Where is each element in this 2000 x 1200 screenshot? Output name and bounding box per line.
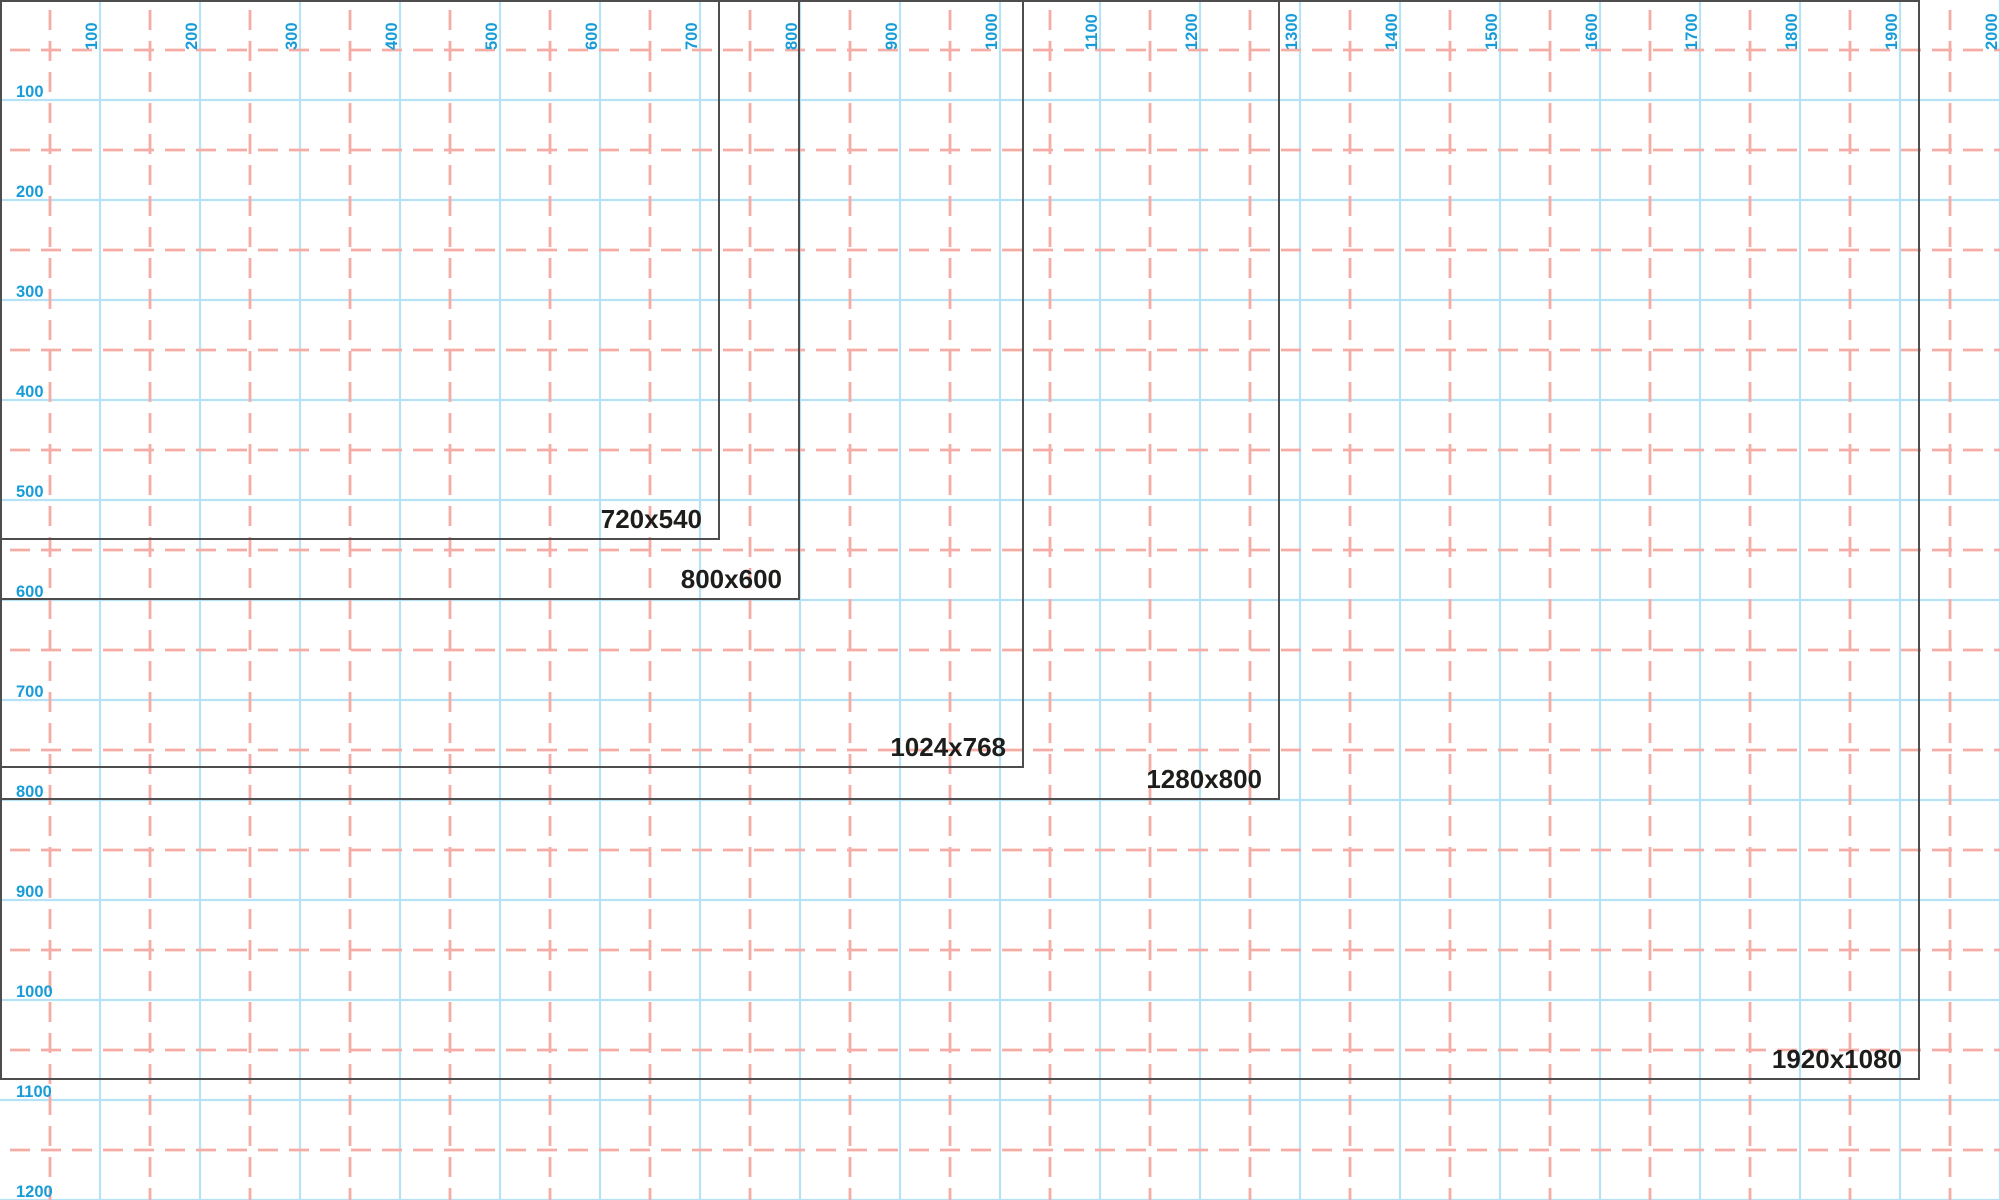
top-tick-label-300: 300	[283, 22, 301, 50]
top-tick-label-400: 400	[383, 22, 401, 50]
top-tick-label-1400: 1400	[1383, 13, 1401, 50]
resolution-grid-svg: 720x540800x6001024x7681280x8001920x10801…	[0, 0, 2000, 1200]
left-tick-label-200: 200	[16, 183, 44, 201]
top-tick-label-1700: 1700	[1683, 13, 1701, 50]
top-tick-label-1100: 1100	[1083, 14, 1101, 50]
top-tick-label-1000: 1000	[983, 13, 1001, 50]
left-tick-label-700: 700	[16, 683, 44, 701]
top-tick-label-500: 500	[483, 22, 501, 50]
left-tick-label-900: 900	[16, 883, 44, 901]
top-tick-label-600: 600	[583, 22, 601, 50]
top-tick-label-700: 700	[683, 22, 701, 50]
top-tick-label-1300: 1300	[1283, 13, 1301, 50]
left-tick-label-1000: 1000	[16, 983, 53, 1001]
left-tick-label-500: 500	[16, 483, 44, 501]
resolution-label-1920x1080: 1920x1080	[1772, 1044, 1902, 1074]
top-tick-label-1600: 1600	[1583, 13, 1601, 50]
left-tick-label-1100: 1100	[16, 1083, 52, 1101]
resolution-label-800x600: 800x600	[681, 564, 782, 594]
top-tick-label-1900: 1900	[1883, 13, 1901, 50]
left-tick-label-800: 800	[16, 783, 44, 801]
resolution-label-720x540: 720x540	[601, 504, 702, 534]
resolution-label-1024x768: 1024x768	[890, 732, 1006, 762]
resolution-grid-canvas: 720x540800x6001024x7681280x8001920x10801…	[0, 0, 2000, 1200]
left-tick-label-1200: 1200	[16, 1183, 53, 1200]
top-tick-label-900: 900	[883, 22, 901, 50]
top-tick-label-1200: 1200	[1183, 13, 1201, 50]
resolution-label-1280x800: 1280x800	[1146, 764, 1262, 794]
left-tick-label-300: 300	[16, 283, 44, 301]
left-tick-label-400: 400	[16, 383, 44, 401]
top-tick-label-2000: 2000	[1983, 13, 2000, 50]
top-tick-label-800: 800	[783, 22, 801, 50]
left-tick-label-100: 100	[16, 83, 44, 101]
top-tick-label-1800: 1800	[1783, 13, 1801, 50]
top-tick-label-100: 100	[83, 22, 101, 50]
top-tick-label-200: 200	[183, 22, 201, 50]
top-tick-label-1500: 1500	[1483, 13, 1501, 50]
left-tick-label-600: 600	[16, 583, 44, 601]
